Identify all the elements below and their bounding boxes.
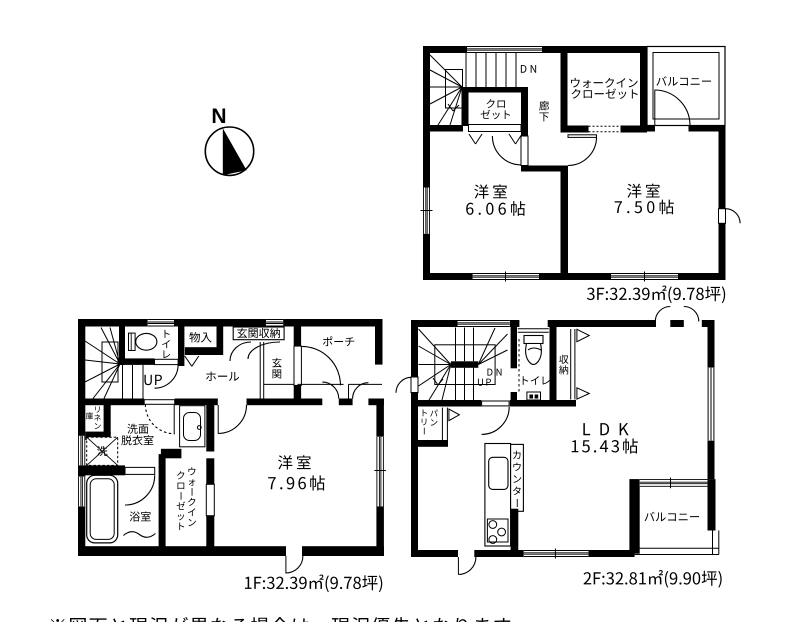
- svg-text:N: N: [211, 105, 226, 128]
